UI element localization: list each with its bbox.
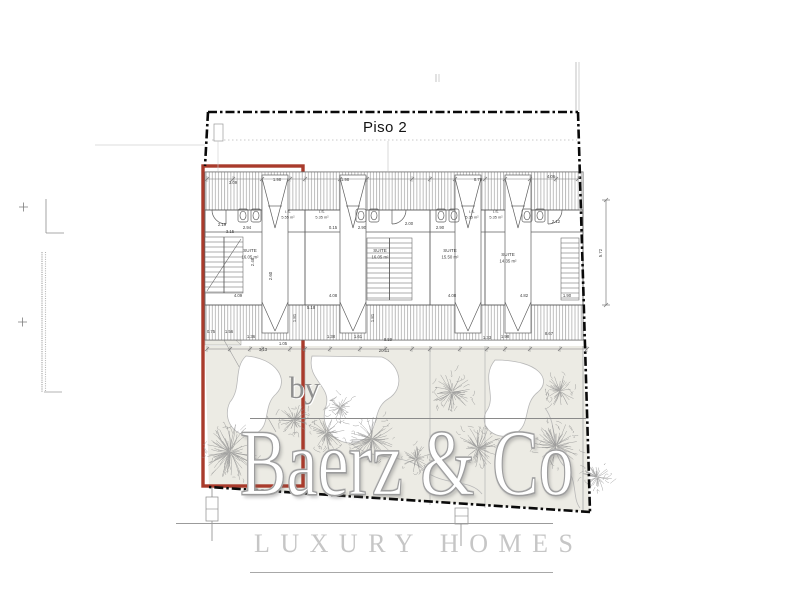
svg-text:3.09: 3.09 bbox=[229, 180, 238, 185]
svg-text:1.90: 1.90 bbox=[563, 293, 572, 298]
svg-text:0.15: 0.15 bbox=[329, 225, 338, 230]
svg-text:4.09: 4.09 bbox=[234, 293, 243, 298]
svg-text:1.36: 1.36 bbox=[247, 334, 256, 339]
svg-text:4.08: 4.08 bbox=[329, 293, 338, 298]
watermark-brand: Baerz & Co bbox=[240, 416, 574, 510]
svg-text:4.08: 4.08 bbox=[448, 293, 457, 298]
svg-text:SUITE: SUITE bbox=[501, 252, 515, 257]
svg-text:2.90: 2.90 bbox=[436, 225, 445, 230]
svg-text:16.05 m²: 16.05 m² bbox=[372, 255, 390, 260]
svg-text:2.19: 2.19 bbox=[218, 222, 227, 227]
svg-text:1.98: 1.98 bbox=[273, 177, 282, 182]
svg-text:2.60: 2.60 bbox=[268, 271, 273, 280]
svg-text:14.35 m²: 14.35 m² bbox=[500, 259, 518, 264]
svg-text:2.00: 2.00 bbox=[405, 221, 414, 226]
svg-text:SUITE: SUITE bbox=[373, 248, 387, 253]
svg-text:5.18: 5.18 bbox=[307, 305, 316, 310]
svg-text:8.59: 8.59 bbox=[384, 337, 393, 342]
svg-text:3.15: 3.15 bbox=[226, 229, 235, 234]
svg-text:1.81: 1.81 bbox=[292, 313, 297, 322]
svg-text:5.35 m²: 5.35 m² bbox=[489, 215, 503, 220]
svg-text:8.79: 8.79 bbox=[474, 177, 483, 182]
watermark-divider-middle bbox=[176, 523, 553, 524]
svg-text:1.05: 1.05 bbox=[279, 341, 288, 346]
watermark-by: by bbox=[289, 370, 320, 406]
floor-label: Piso 2 bbox=[363, 119, 407, 136]
svg-text:0.75: 0.75 bbox=[207, 329, 216, 334]
svg-text:15.50 m²: 15.50 m² bbox=[442, 255, 460, 260]
svg-text:1.33: 1.33 bbox=[483, 335, 492, 340]
svg-text:16.05 m²: 16.05 m² bbox=[242, 255, 260, 260]
blueprint-sheet: 3.091.981.988.794.062.192.942.902.902.00… bbox=[0, 0, 800, 600]
watermark-tagline: LUXURY HOMES bbox=[254, 529, 583, 559]
svg-text:5.55 m²: 5.55 m² bbox=[281, 215, 295, 220]
svg-text:2.94: 2.94 bbox=[243, 225, 252, 230]
watermark-divider-bottom bbox=[250, 572, 553, 573]
svg-text:SUITE: SUITE bbox=[243, 248, 257, 253]
svg-text:SUITE: SUITE bbox=[443, 248, 457, 253]
svg-text:1.38: 1.38 bbox=[327, 334, 336, 339]
svg-text:1.98: 1.98 bbox=[501, 334, 510, 339]
svg-text:8.67: 8.67 bbox=[545, 331, 554, 336]
svg-text:5.72: 5.72 bbox=[598, 248, 603, 257]
svg-text:I.S.: I.S. bbox=[285, 209, 291, 214]
svg-text:2.90: 2.90 bbox=[358, 225, 367, 230]
svg-text:5.35 m²: 5.35 m² bbox=[315, 215, 329, 220]
svg-text:1.81: 1.81 bbox=[370, 313, 375, 322]
svg-text:4.06: 4.06 bbox=[547, 174, 556, 179]
svg-text:I.S.: I.S. bbox=[319, 209, 325, 214]
svg-text:1.56: 1.56 bbox=[225, 329, 234, 334]
svg-text:I.S.: I.S. bbox=[493, 209, 499, 214]
svg-text:I.S.: I.S. bbox=[469, 209, 475, 214]
svg-text:1.61: 1.61 bbox=[354, 334, 363, 339]
svg-text:1.98: 1.98 bbox=[341, 177, 350, 182]
svg-text:4.82: 4.82 bbox=[520, 293, 529, 298]
svg-text:5.35 m²: 5.35 m² bbox=[465, 215, 479, 220]
svg-text:2.12: 2.12 bbox=[552, 219, 561, 224]
